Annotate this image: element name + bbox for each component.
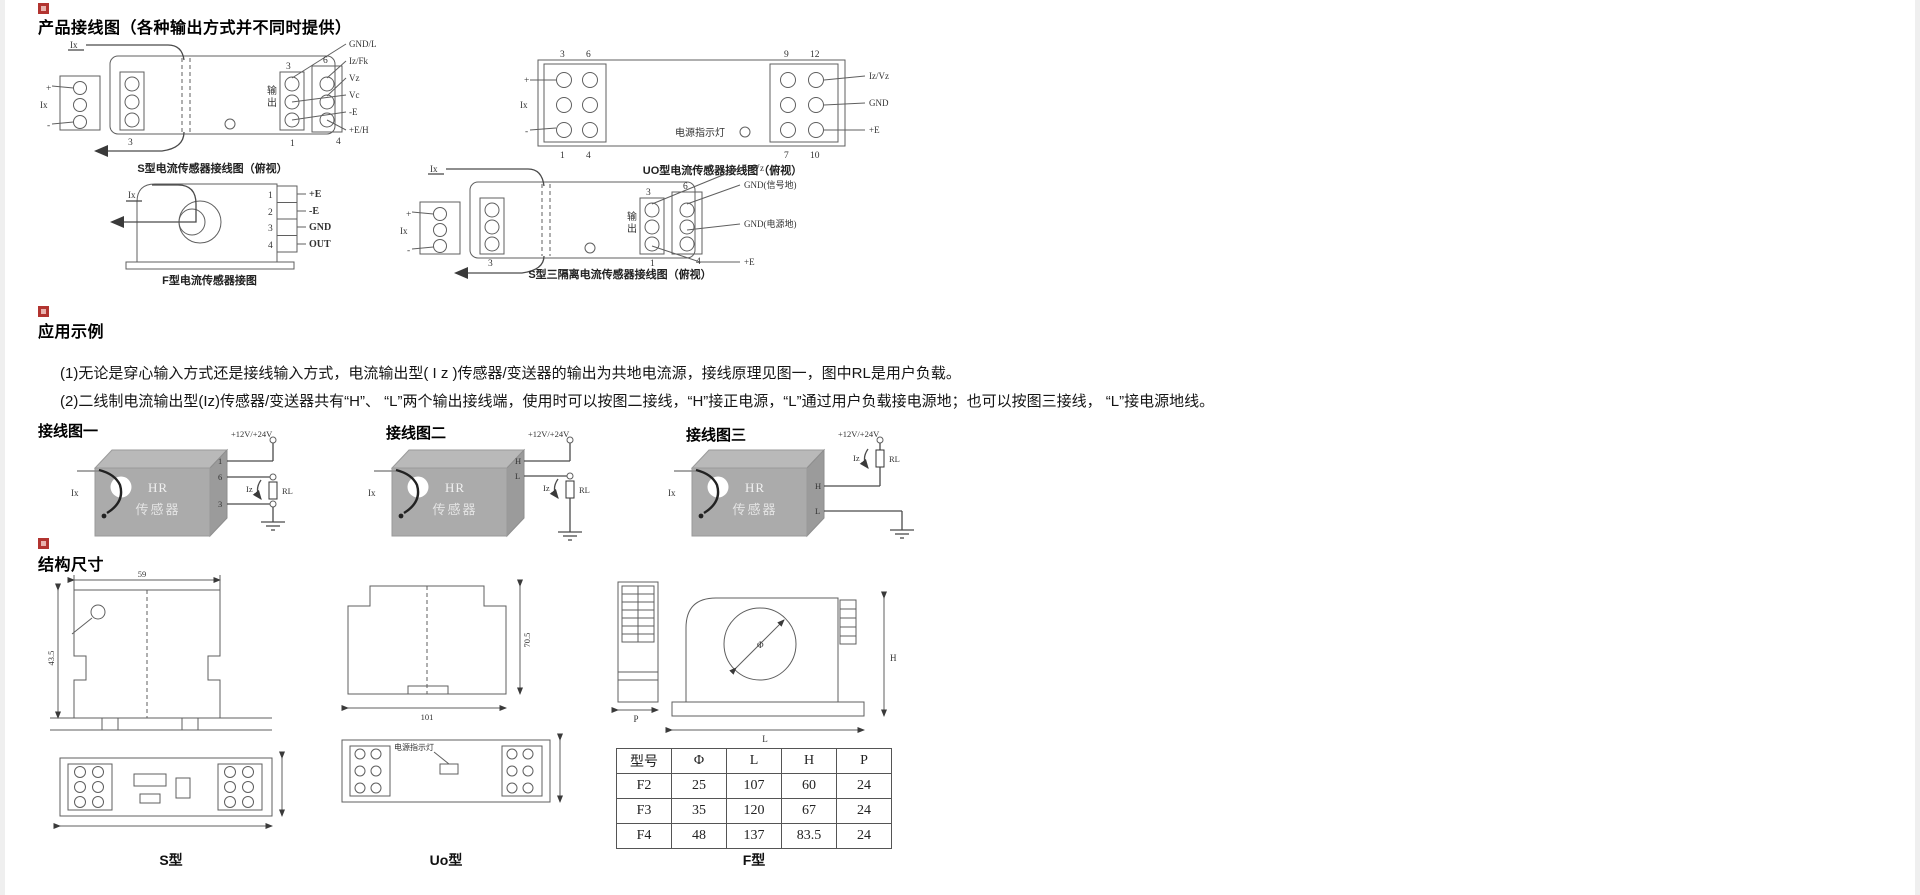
current-label: Iz	[853, 453, 860, 463]
pin-label: Iz/Vz	[744, 163, 764, 173]
table-cell: 35	[672, 799, 727, 824]
table-cell: F4	[617, 824, 672, 849]
table-cell: F3	[617, 799, 672, 824]
terminal-number: 3	[286, 62, 291, 72]
top-view	[342, 740, 560, 802]
pin-label: GND(信号地)	[744, 179, 797, 190]
input-side-label: Ix	[400, 226, 408, 236]
output-label: 出	[627, 222, 637, 235]
current-label: Iz	[543, 483, 550, 493]
pin-number: L	[515, 471, 520, 481]
wiring-figure-3: Ix HR 传感器 H L +12V/+24V Iz RL	[652, 430, 937, 550]
table-cell: 120	[727, 799, 782, 824]
table-row: F3 35 120 67 24	[617, 799, 892, 824]
terminal-number: 4	[268, 241, 273, 251]
pin-label: Vz	[349, 73, 360, 83]
device-name: HR	[445, 480, 465, 495]
page-edge-left	[0, 0, 5, 895]
load-label: RL	[579, 485, 590, 495]
pin-number: 1	[218, 456, 222, 466]
power-label: +12V/+24V	[231, 429, 273, 439]
section-marker-icon	[38, 3, 49, 14]
pin-label: GND/L	[349, 39, 377, 49]
terminal-number: 1	[268, 191, 273, 201]
s3-type-caption: S型三隔离电流传感器接线图（俯视）	[400, 266, 840, 282]
terminal-number: 6	[323, 56, 328, 66]
table-cell: 83.5	[782, 824, 837, 849]
table-cell: 24	[837, 799, 892, 824]
f-type-primary-wire	[110, 185, 196, 228]
s3-type-module	[412, 182, 702, 258]
s3-type-wiring-diagram: Ix + Ix - 3 输 出 3 6 1 4 Iz/Vz GND(信号地) G…	[400, 160, 840, 266]
uo-type-drawing-caption: Uo型	[322, 850, 570, 870]
s-type-dimension-drawing: 59 43.5	[42, 568, 300, 836]
s-type-wiring-diagram: Ix + Ix - 3 输 出 3 6 1 4 GND/L Iz/Fk Vz V…	[40, 36, 385, 158]
minus-label: -	[407, 246, 410, 256]
table-cell: 48	[672, 824, 727, 849]
terminal-number: 4	[336, 137, 341, 147]
power-indicator-label: 电源指示灯	[675, 126, 725, 139]
f-type-body	[126, 184, 306, 269]
pin-label: +E	[309, 189, 322, 200]
device-name-cn: 传感器	[135, 502, 180, 517]
top-view	[60, 758, 282, 826]
pin-label: -E	[349, 107, 358, 117]
pin-label: GND(电源地)	[744, 218, 797, 229]
wiring-figure-1: Ix HR 传感器 1 6 3 +12V/+24V Iz RL	[55, 430, 330, 550]
s-type-module	[52, 56, 342, 134]
table-cell: 25	[672, 774, 727, 799]
table-header-row: 型号 Φ L H P	[617, 749, 892, 774]
section-title-wiring: 产品接线图（各种输出方式并不同时提供）	[38, 14, 352, 38]
load-resistor	[566, 481, 574, 498]
terminal-number: 6	[683, 182, 688, 192]
pin-number: 6	[218, 472, 222, 482]
load-label: RL	[889, 454, 900, 464]
f-type-dimension-drawing: P Φ H L	[608, 576, 900, 744]
input-label: Ix	[668, 488, 676, 498]
load-resistor	[876, 450, 884, 467]
external-circuit	[524, 437, 582, 540]
terminal-number: 2	[268, 208, 273, 218]
input-label: Ix	[520, 100, 528, 110]
table-cell: 107	[727, 774, 782, 799]
table-cell: 60	[782, 774, 837, 799]
table-cell: 24	[837, 774, 892, 799]
dim-l-label: L	[762, 734, 768, 744]
pin-number: H	[815, 481, 821, 491]
device-name-cn: 传感器	[732, 502, 777, 517]
side-view	[618, 582, 658, 710]
pin-label: +E/H	[349, 125, 369, 135]
dim-p-label: P	[633, 714, 638, 724]
terminal-number: 3	[128, 138, 133, 148]
s-type-drawing-caption: S型	[42, 850, 300, 870]
section-marker-icon	[38, 538, 49, 549]
device-name: HR	[148, 480, 168, 495]
section-title-application: 应用示例	[38, 318, 104, 342]
dim-width-label: 59	[138, 569, 147, 579]
pin-number: 3	[218, 499, 222, 509]
plus-label: +	[46, 84, 51, 94]
table-cell: 137	[727, 824, 782, 849]
f-type-caption: F型电流传感器接图	[82, 272, 337, 288]
input-label: Ix	[71, 488, 79, 498]
pin-number: H	[515, 456, 521, 466]
pin-label: GND	[869, 98, 889, 108]
dim-phi-label: Φ	[757, 640, 764, 650]
input-label: Ix	[368, 488, 376, 498]
terminal-number: 3	[268, 224, 273, 234]
pin-number: L	[815, 506, 820, 516]
table-cell: 67	[782, 799, 837, 824]
pin-label: OUT	[309, 239, 331, 250]
device-name: HR	[745, 480, 765, 495]
f-type-drawing-caption: F型	[608, 850, 900, 870]
external-circuit	[824, 437, 914, 538]
uo-type-dimension-drawing: 70.5 101 电源指示灯	[322, 572, 570, 840]
pin-label: -E	[309, 206, 319, 217]
wiring-figure-2: Ix HR 传感器 H L +12V/+24V Iz RL	[352, 430, 627, 550]
profile-view	[348, 586, 520, 708]
datasheet-page: 产品接线图（各种输出方式并不同时提供） Ix	[0, 0, 1920, 895]
dim-h-label: H	[890, 653, 897, 663]
table-header-cell: 型号	[617, 749, 672, 774]
external-circuit	[227, 437, 285, 530]
table-row: F4 48 137 83.5 24	[617, 824, 892, 849]
power-indicator-label: 电源指示灯	[394, 742, 434, 752]
table-row: F2 25 107 60 24	[617, 774, 892, 799]
dim-height-label: 43.5	[46, 651, 56, 666]
output-label: 输	[267, 84, 277, 97]
pin-label: Iz/Vz	[869, 71, 889, 81]
terminal-number: 3	[646, 188, 651, 198]
pin-label: Vc	[349, 90, 360, 100]
table-header-cell: Φ	[672, 749, 727, 774]
minus-label: -	[525, 127, 528, 137]
uo-type-wiring-diagram: + Ix - 3 6 1 4 9 12 7 10 电源指示灯 Iz/Vz GND…	[520, 46, 925, 162]
terminal-number: 1	[290, 139, 295, 149]
load-resistor	[269, 482, 277, 499]
load-label: RL	[282, 486, 293, 496]
input-label: Ix	[70, 40, 78, 50]
pin-label: +E	[869, 125, 880, 135]
s-type-pin-leaders	[292, 44, 346, 130]
output-label: 出	[267, 96, 277, 109]
power-label: +12V/+24V	[528, 429, 570, 439]
pin-label: GND	[309, 222, 331, 233]
table-header-cell: P	[837, 749, 892, 774]
section-marker-icon	[38, 306, 49, 317]
power-label: +12V/+24V	[838, 429, 880, 439]
dim-width-label: 101	[421, 712, 434, 722]
table-cell: 24	[837, 824, 892, 849]
plus-label: +	[524, 76, 529, 86]
table-header-cell: H	[782, 749, 837, 774]
input-label: Ix	[128, 190, 136, 200]
table-header-cell: L	[727, 749, 782, 774]
plus-label: +	[406, 210, 411, 220]
application-paragraph-2: (2)二线制电流输出型(Iz)传感器/变送器共有“H”、 “L”两个输出接线端，…	[60, 390, 1214, 411]
terminal-number: 9	[784, 50, 789, 60]
dim-height-label: 70.5	[522, 633, 532, 648]
output-label: 输	[627, 210, 637, 223]
terminal-number: 12	[810, 50, 820, 60]
current-label: Iz	[246, 484, 253, 494]
terminal-number: 6	[586, 50, 591, 60]
device-name-cn: 传感器	[432, 502, 477, 517]
input-side-label: Ix	[40, 100, 48, 110]
front-view	[672, 598, 884, 730]
table-cell: F2	[617, 774, 672, 799]
minus-label: -	[47, 121, 50, 131]
pin-label: Iz/Fk	[349, 56, 368, 66]
f-type-dimension-table: 型号 Φ L H P F2 25 107 60 24 F3 35 120 67 …	[616, 748, 892, 849]
application-paragraph-1: (1)无论是穿心输入方式还是接线输入方式，电流输出型( I z )传感器/变送器…	[60, 362, 961, 383]
page-edge-right	[1915, 0, 1920, 895]
front-view	[50, 575, 272, 730]
terminal-number: 3	[560, 50, 565, 60]
f-type-wiring-diagram: Ix 1 2 3 4 +E -E GND OUT	[82, 170, 337, 270]
input-label: Ix	[430, 164, 438, 174]
